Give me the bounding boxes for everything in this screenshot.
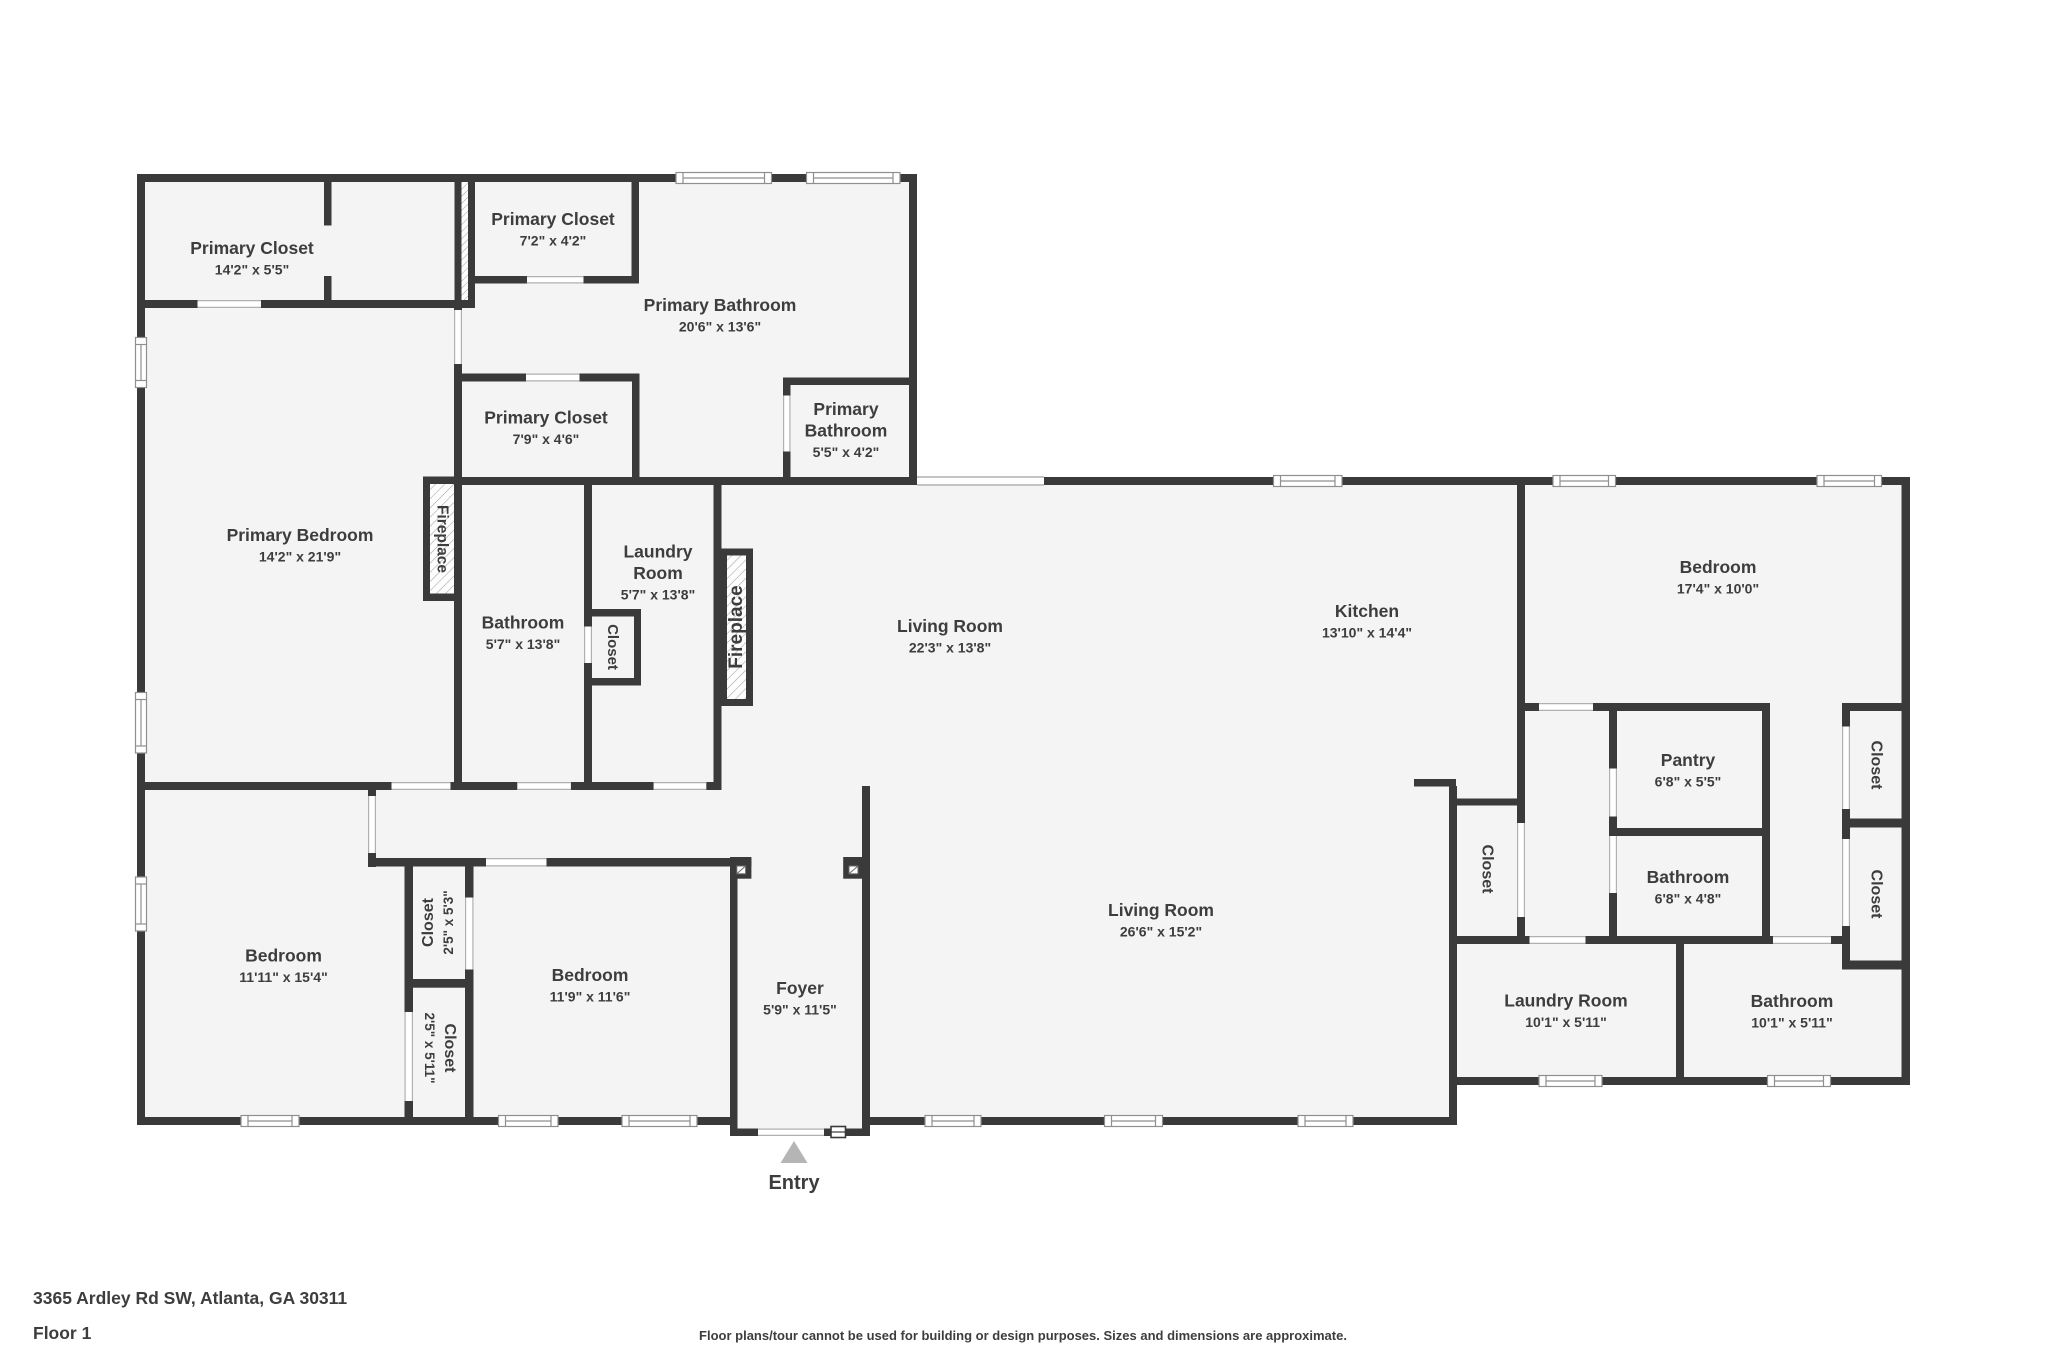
svg-text:22'3" x 13'8": 22'3" x 13'8" (909, 639, 991, 655)
svg-text:2'5" x 5'11": 2'5" x 5'11" (422, 1012, 437, 1083)
svg-text:13'10" x 14'4": 13'10" x 14'4" (1322, 624, 1412, 640)
svg-text:Closet: Closet (441, 1024, 458, 1074)
svg-text:5'7" x 13'8": 5'7" x 13'8" (486, 636, 560, 652)
svg-text:Bedroom: Bedroom (1680, 557, 1757, 577)
svg-text:Closet: Closet (1868, 741, 1885, 791)
svg-text:Closet: Closet (1868, 870, 1885, 920)
svg-text:6'8" x 5'5": 6'8" x 5'5" (1655, 773, 1722, 789)
svg-text:Primary Closet: Primary Closet (484, 407, 608, 427)
svg-text:Room: Room (633, 563, 683, 583)
svg-text:11'11" x 15'4": 11'11" x 15'4" (239, 969, 327, 985)
svg-text:11'9" x 11'6": 11'9" x 11'6" (550, 988, 631, 1004)
svg-text:Bathroom: Bathroom (1751, 991, 1834, 1011)
svg-text:Bathroom: Bathroom (805, 421, 888, 441)
svg-text:Fireplace: Fireplace (434, 505, 451, 573)
svg-text:20'6" x 13'6": 20'6" x 13'6" (679, 318, 761, 334)
svg-text:Kitchen: Kitchen (1335, 601, 1399, 621)
svg-text:Living Room: Living Room (1108, 900, 1214, 920)
svg-text:Pantry: Pantry (1661, 750, 1716, 770)
svg-text:Floor plans/tour cannot be use: Floor plans/tour cannot be used for buil… (699, 1328, 1347, 1343)
svg-text:Bathroom: Bathroom (482, 612, 565, 632)
svg-text:17'4" x 10'0": 17'4" x 10'0" (1677, 580, 1759, 596)
svg-text:Closet: Closet (1479, 845, 1496, 895)
svg-text:Primary Bathroom: Primary Bathroom (644, 295, 797, 315)
svg-text:5'5" x 4'2": 5'5" x 4'2" (813, 444, 880, 460)
svg-text:26'6" x 15'2": 26'6" x 15'2" (1120, 923, 1202, 939)
svg-text:Closet: Closet (420, 897, 437, 947)
svg-text:Bedroom: Bedroom (245, 945, 322, 965)
svg-text:Primary Closet: Primary Closet (190, 238, 314, 258)
svg-text:6'8" x 4'8": 6'8" x 4'8" (1655, 890, 1722, 906)
svg-text:2'5" x 5'3": 2'5" x 5'3" (441, 890, 456, 954)
svg-text:Floor 1: Floor 1 (33, 1323, 92, 1343)
svg-text:Laundry: Laundry (623, 542, 692, 562)
svg-text:Foyer: Foyer (776, 978, 824, 998)
svg-text:Primary Bedroom: Primary Bedroom (227, 525, 374, 545)
svg-text:3365 Ardley Rd SW, Atlanta, GA: 3365 Ardley Rd SW, Atlanta, GA 30311 (33, 1288, 347, 1308)
svg-text:Entry: Entry (768, 1172, 820, 1194)
svg-text:14'2" x 5'5": 14'2" x 5'5" (215, 261, 289, 277)
svg-text:10'1" x 5'11": 10'1" x 5'11" (1525, 1014, 1606, 1030)
svg-text:Laundry Room: Laundry Room (1504, 990, 1627, 1010)
svg-text:14'2" x 21'9": 14'2" x 21'9" (259, 548, 341, 564)
svg-text:5'7" x 13'8": 5'7" x 13'8" (621, 587, 695, 603)
svg-text:10'1" x 5'11": 10'1" x 5'11" (1751, 1014, 1832, 1030)
svg-text:Bedroom: Bedroom (552, 965, 629, 985)
svg-text:Fireplace: Fireplace (726, 585, 747, 668)
svg-text:7'2" x 4'2": 7'2" x 4'2" (520, 232, 587, 248)
svg-text:Closet: Closet (604, 624, 621, 670)
svg-text:7'9" x 4'6": 7'9" x 4'6" (513, 431, 580, 447)
svg-text:Living Room: Living Room (897, 616, 1003, 636)
svg-text:Primary Closet: Primary Closet (491, 209, 615, 229)
svg-text:Primary: Primary (813, 399, 878, 419)
svg-text:5'9" x 11'5": 5'9" x 11'5" (763, 1001, 837, 1017)
svg-text:Bathroom: Bathroom (1647, 867, 1730, 887)
